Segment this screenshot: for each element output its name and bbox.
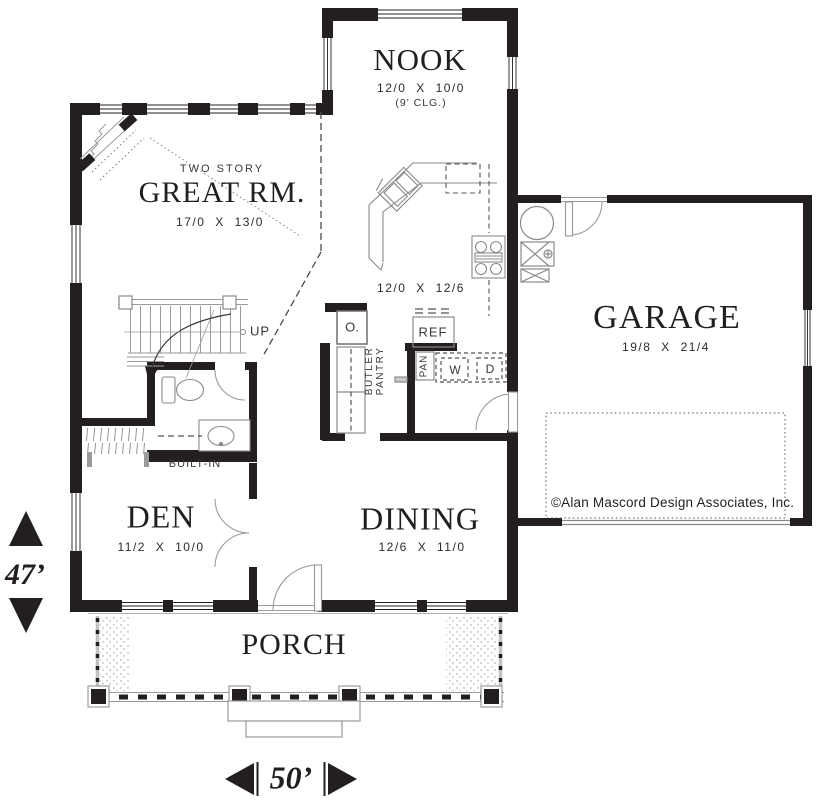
kitchen-dims: 12/0 X 12/6 [377, 281, 465, 295]
left-arrowhead [225, 763, 254, 795]
built-in-label: BUILT-IN [169, 458, 221, 470]
fireplace [77, 113, 144, 180]
porch-texture [446, 617, 498, 691]
washer-dryer [436, 353, 506, 382]
cooktop [472, 236, 505, 278]
dining-label: DINING [360, 501, 480, 538]
den-door-arc [215, 533, 249, 567]
great-room-dims: 17/0 X 13/0 [176, 215, 264, 229]
width-dimension: 50’ [270, 760, 313, 797]
porch-label: PORCH [241, 628, 346, 662]
up-arrowhead [9, 511, 43, 546]
floor-plan: NOOK 12/0 X 10/0 (9' CLG.) TWO STORY GRE… [0, 0, 818, 800]
laundry-faucet [395, 377, 407, 382]
height-dimension: 47’ [5, 558, 45, 592]
dining-dims: 12/6 X 11/0 [379, 540, 466, 554]
porch-texture [100, 617, 130, 691]
garage-entry-door-arc [569, 202, 602, 235]
garage-dims: 19/8 X 21/4 [622, 340, 710, 354]
den-door-arc [215, 499, 249, 533]
entry-door-leaf [315, 565, 322, 611]
counter-outer-edge [369, 163, 477, 270]
floor-plan-drawing [0, 0, 818, 800]
garage-entry-door-leaf [566, 202, 573, 236]
kitchen-sink [373, 162, 422, 211]
water-heater [521, 207, 554, 240]
newel-post [119, 296, 132, 309]
entry-door-arc [273, 565, 318, 610]
nook-dims: 12/0 X 10/0 [377, 81, 465, 95]
pan-label: PAN [419, 355, 430, 378]
den-label: DEN [127, 499, 196, 536]
bathroom-sink [199, 420, 250, 451]
closet-hatch [86, 428, 148, 454]
ref-label: REF [419, 325, 448, 340]
toilet [162, 377, 204, 403]
two-story-note: TWO STORY [180, 163, 264, 175]
powder-room [162, 377, 250, 451]
garage-hall-door-leaf [509, 392, 518, 432]
den-dims: 11/2 X 10/0 [118, 540, 205, 554]
right-arrowhead [328, 763, 357, 795]
garage-fixtures [521, 207, 555, 283]
nook-label: NOOK [373, 42, 467, 78]
up-label: UP [250, 324, 270, 339]
newel-post [223, 296, 236, 309]
garage-hall-door-arc [476, 394, 512, 430]
vent-unit [521, 269, 549, 282]
garage-label: GARAGE [593, 299, 741, 337]
copyright-text: ©Alan Mascord Design Associates, Inc. [551, 495, 794, 510]
butler-pantry-label: BUTLER PANTRY [364, 347, 386, 396]
furnace [521, 242, 554, 266]
down-arrowhead [9, 598, 43, 633]
up-leader-dot [241, 330, 246, 335]
dryer-label: D [486, 362, 495, 376]
powder-door-arc [215, 370, 245, 400]
washer-label: W [449, 363, 460, 377]
porch-steps [228, 701, 360, 737]
nook-ceiling-note: (9' CLG.) [395, 97, 446, 109]
great-room-label: GREAT RM. [139, 176, 306, 210]
oven-label: O. [345, 320, 359, 335]
